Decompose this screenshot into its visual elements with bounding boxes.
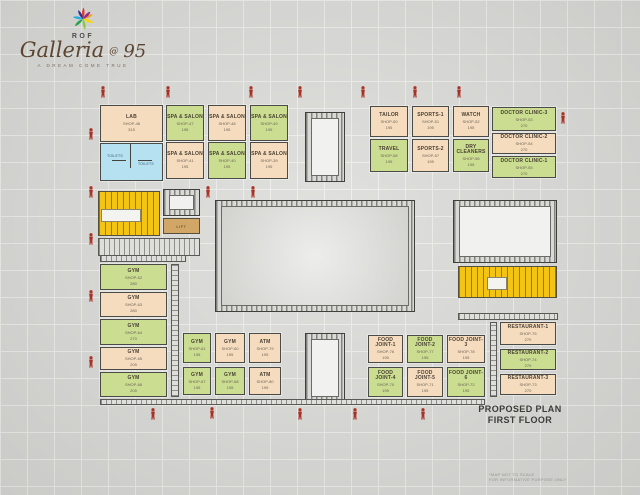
void-shaft-left bbox=[163, 189, 200, 216]
room-sports-1: SPORTS-1 SHOP-51 195 bbox=[412, 106, 449, 137]
person-figure bbox=[360, 86, 366, 98]
room-lab: LAB SHOP-46 315 bbox=[100, 105, 163, 142]
room-atm: ATM SHOP-80 195 bbox=[249, 367, 281, 395]
room-food-joint-1: FOOD JOINT-1 SHOP-76 195 bbox=[368, 335, 403, 363]
void-shaft-right bbox=[453, 200, 557, 263]
corridor-hatch bbox=[100, 399, 485, 405]
person-figure bbox=[250, 186, 256, 198]
person-figure bbox=[165, 86, 171, 98]
room-gym: GYM SHOP-67 195 bbox=[183, 367, 211, 395]
person-figure bbox=[248, 86, 254, 98]
plan-title: PROPOSED PLAN FIRST FLOOR bbox=[452, 404, 588, 426]
toilet-wall bbox=[138, 160, 152, 161]
room-gym: GYM SHOP-63 280 bbox=[100, 292, 167, 317]
room-gym: GYM SHOP-60 195 bbox=[215, 333, 245, 363]
logo: ROF Galleria @ 95 A DREAM COME TRUE bbox=[18, 6, 148, 68]
logo-title: Galleria @ 95 bbox=[18, 40, 148, 62]
room-spa-salon: SPA & SALON SHOP-39 195 bbox=[250, 142, 288, 179]
pinwheel-logo-icon bbox=[70, 6, 96, 32]
person-figure bbox=[456, 86, 462, 98]
person-figure bbox=[88, 233, 94, 245]
void-shaft-top bbox=[305, 112, 345, 182]
room-gym: GYM SHOP-68 195 bbox=[215, 367, 245, 395]
lift-room: LIFT bbox=[163, 218, 200, 234]
corridor-hatch bbox=[98, 238, 200, 256]
room-gym: GYM SHOP-62 280 bbox=[100, 264, 167, 290]
person-figure bbox=[297, 408, 303, 420]
room-doctor-clinic-1: DOCTOR CLINIC-1 SHOP-55 270 bbox=[492, 156, 556, 178]
person-figure bbox=[88, 186, 94, 198]
logo-tagline: A DREAM COME TRUE bbox=[18, 63, 148, 68]
person-figure bbox=[100, 86, 106, 98]
room-doctor-clinic-2: DOCTOR CLINIC-2 SHOP-54 270 bbox=[492, 133, 556, 154]
corridor-hatch bbox=[171, 264, 179, 397]
room-food-joint-2: FOOD JOINT-2 SHOP-77 195 bbox=[407, 335, 443, 363]
central-atrium-void bbox=[215, 200, 415, 312]
room-doctor-clinic-3: DOCTOR CLINIC-3 SHOP-53 270 bbox=[492, 107, 556, 131]
room-gym: GYM SHOP-64 270 bbox=[100, 319, 167, 345]
room-restaurant-3: RESTAURANT-3 SHOP-73 270 bbox=[500, 374, 556, 395]
toilet-wall bbox=[130, 144, 131, 168]
toilet-wall bbox=[112, 160, 126, 161]
person-figure bbox=[560, 112, 566, 124]
room-food-joint-3: FOOD JOINT-3 SHOP-78 195 bbox=[447, 335, 485, 363]
room-sports-2: SPORTS-2 SHOP-57 195 bbox=[412, 139, 449, 172]
person-figure bbox=[88, 356, 94, 368]
toilets-label: TOILETS bbox=[138, 162, 154, 166]
corridor-hatch bbox=[490, 322, 497, 397]
room-dry-cleaners: DRY CLEANERS SHOP-56 195 bbox=[453, 139, 489, 172]
room-restaurant-2: RESTAURANT-2 SHOP-74 270 bbox=[500, 349, 556, 370]
room-travel: TRAVEL SHOP-58 195 bbox=[370, 139, 408, 172]
person-figure bbox=[88, 128, 94, 140]
room-tailor: TAILOR SHOP-50 195 bbox=[370, 106, 408, 137]
staircase-left bbox=[98, 191, 160, 236]
staircase-right bbox=[458, 266, 557, 298]
room-restaurant-1: RESTAURANT-1 SHOP-75 270 bbox=[500, 322, 556, 345]
map-disclaimer: *MAP NOT TO SCALE FOR INFORMATIVE PURPOS… bbox=[489, 472, 566, 482]
corridor-hatch bbox=[458, 313, 558, 320]
room-spa-salon: SPA & SALON SHOP-49 195 bbox=[250, 105, 288, 141]
room-spa-salon: SPA & SALON SHOP-41 195 bbox=[166, 142, 204, 179]
room-spa-salon: SPA & SALON SHOP-47 195 bbox=[166, 105, 204, 141]
person-figure bbox=[297, 86, 303, 98]
room-food-joint-6: FOOD JOINT-6 SHOP-72 195 bbox=[447, 367, 485, 397]
corridor-hatch bbox=[100, 255, 186, 262]
room-food-joint-5: FOOD JOINT-5 SHOP-71 195 bbox=[407, 367, 443, 397]
person-figure bbox=[352, 408, 358, 420]
floor-plan-page: ROF Galleria @ 95 A DREAM COME TRUE LAB … bbox=[0, 0, 640, 495]
person-figure bbox=[209, 407, 215, 419]
room-watch: WATCH SHOP-52 195 bbox=[453, 106, 489, 137]
room-spa-salon: SPA & SALON SHOP-40 195 bbox=[208, 142, 246, 179]
toilets-label: TOILETS bbox=[107, 154, 123, 158]
void-shaft-bottom bbox=[305, 333, 345, 403]
room-gym: GYM SHOP-66 205 bbox=[100, 372, 167, 397]
room-spa-salon: SPA & SALON SHOP-48 195 bbox=[208, 105, 246, 141]
room-atm: ATM SHOP-79 195 bbox=[249, 333, 281, 363]
room-gym: GYM SHOP-65 205 bbox=[100, 347, 167, 370]
person-figure bbox=[205, 186, 211, 198]
room-food-joint-4: FOOD JOINT-4 SHOP-70 195 bbox=[368, 367, 403, 397]
room-gym: GYM SHOP-61 195 bbox=[183, 333, 211, 363]
person-figure bbox=[150, 408, 156, 420]
person-figure bbox=[420, 408, 426, 420]
person-figure bbox=[412, 86, 418, 98]
person-figure bbox=[88, 290, 94, 302]
